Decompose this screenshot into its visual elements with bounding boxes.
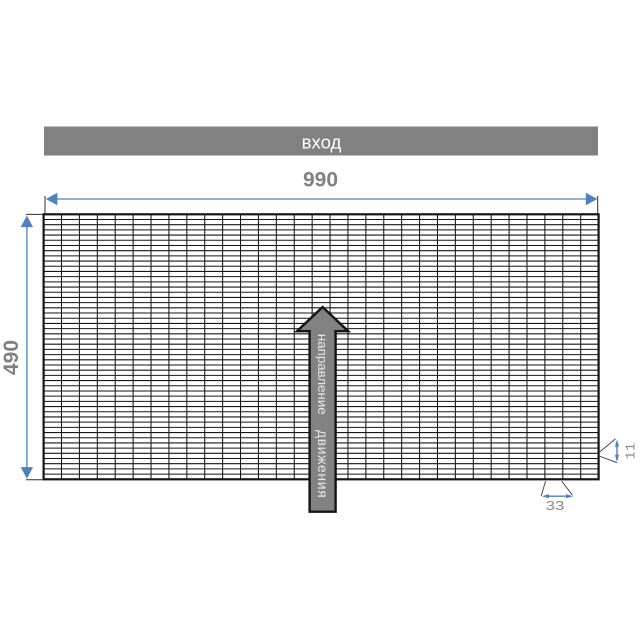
svg-text:990: 990 (303, 169, 338, 192)
svg-text:490: 490 (0, 340, 23, 375)
svg-text:33: 33 (546, 498, 565, 513)
svg-text:направление: направление (315, 334, 330, 415)
svg-text:11: 11 (625, 442, 640, 459)
svg-text:вход: вход (302, 132, 342, 153)
svg-text:движения: движения (315, 430, 331, 499)
